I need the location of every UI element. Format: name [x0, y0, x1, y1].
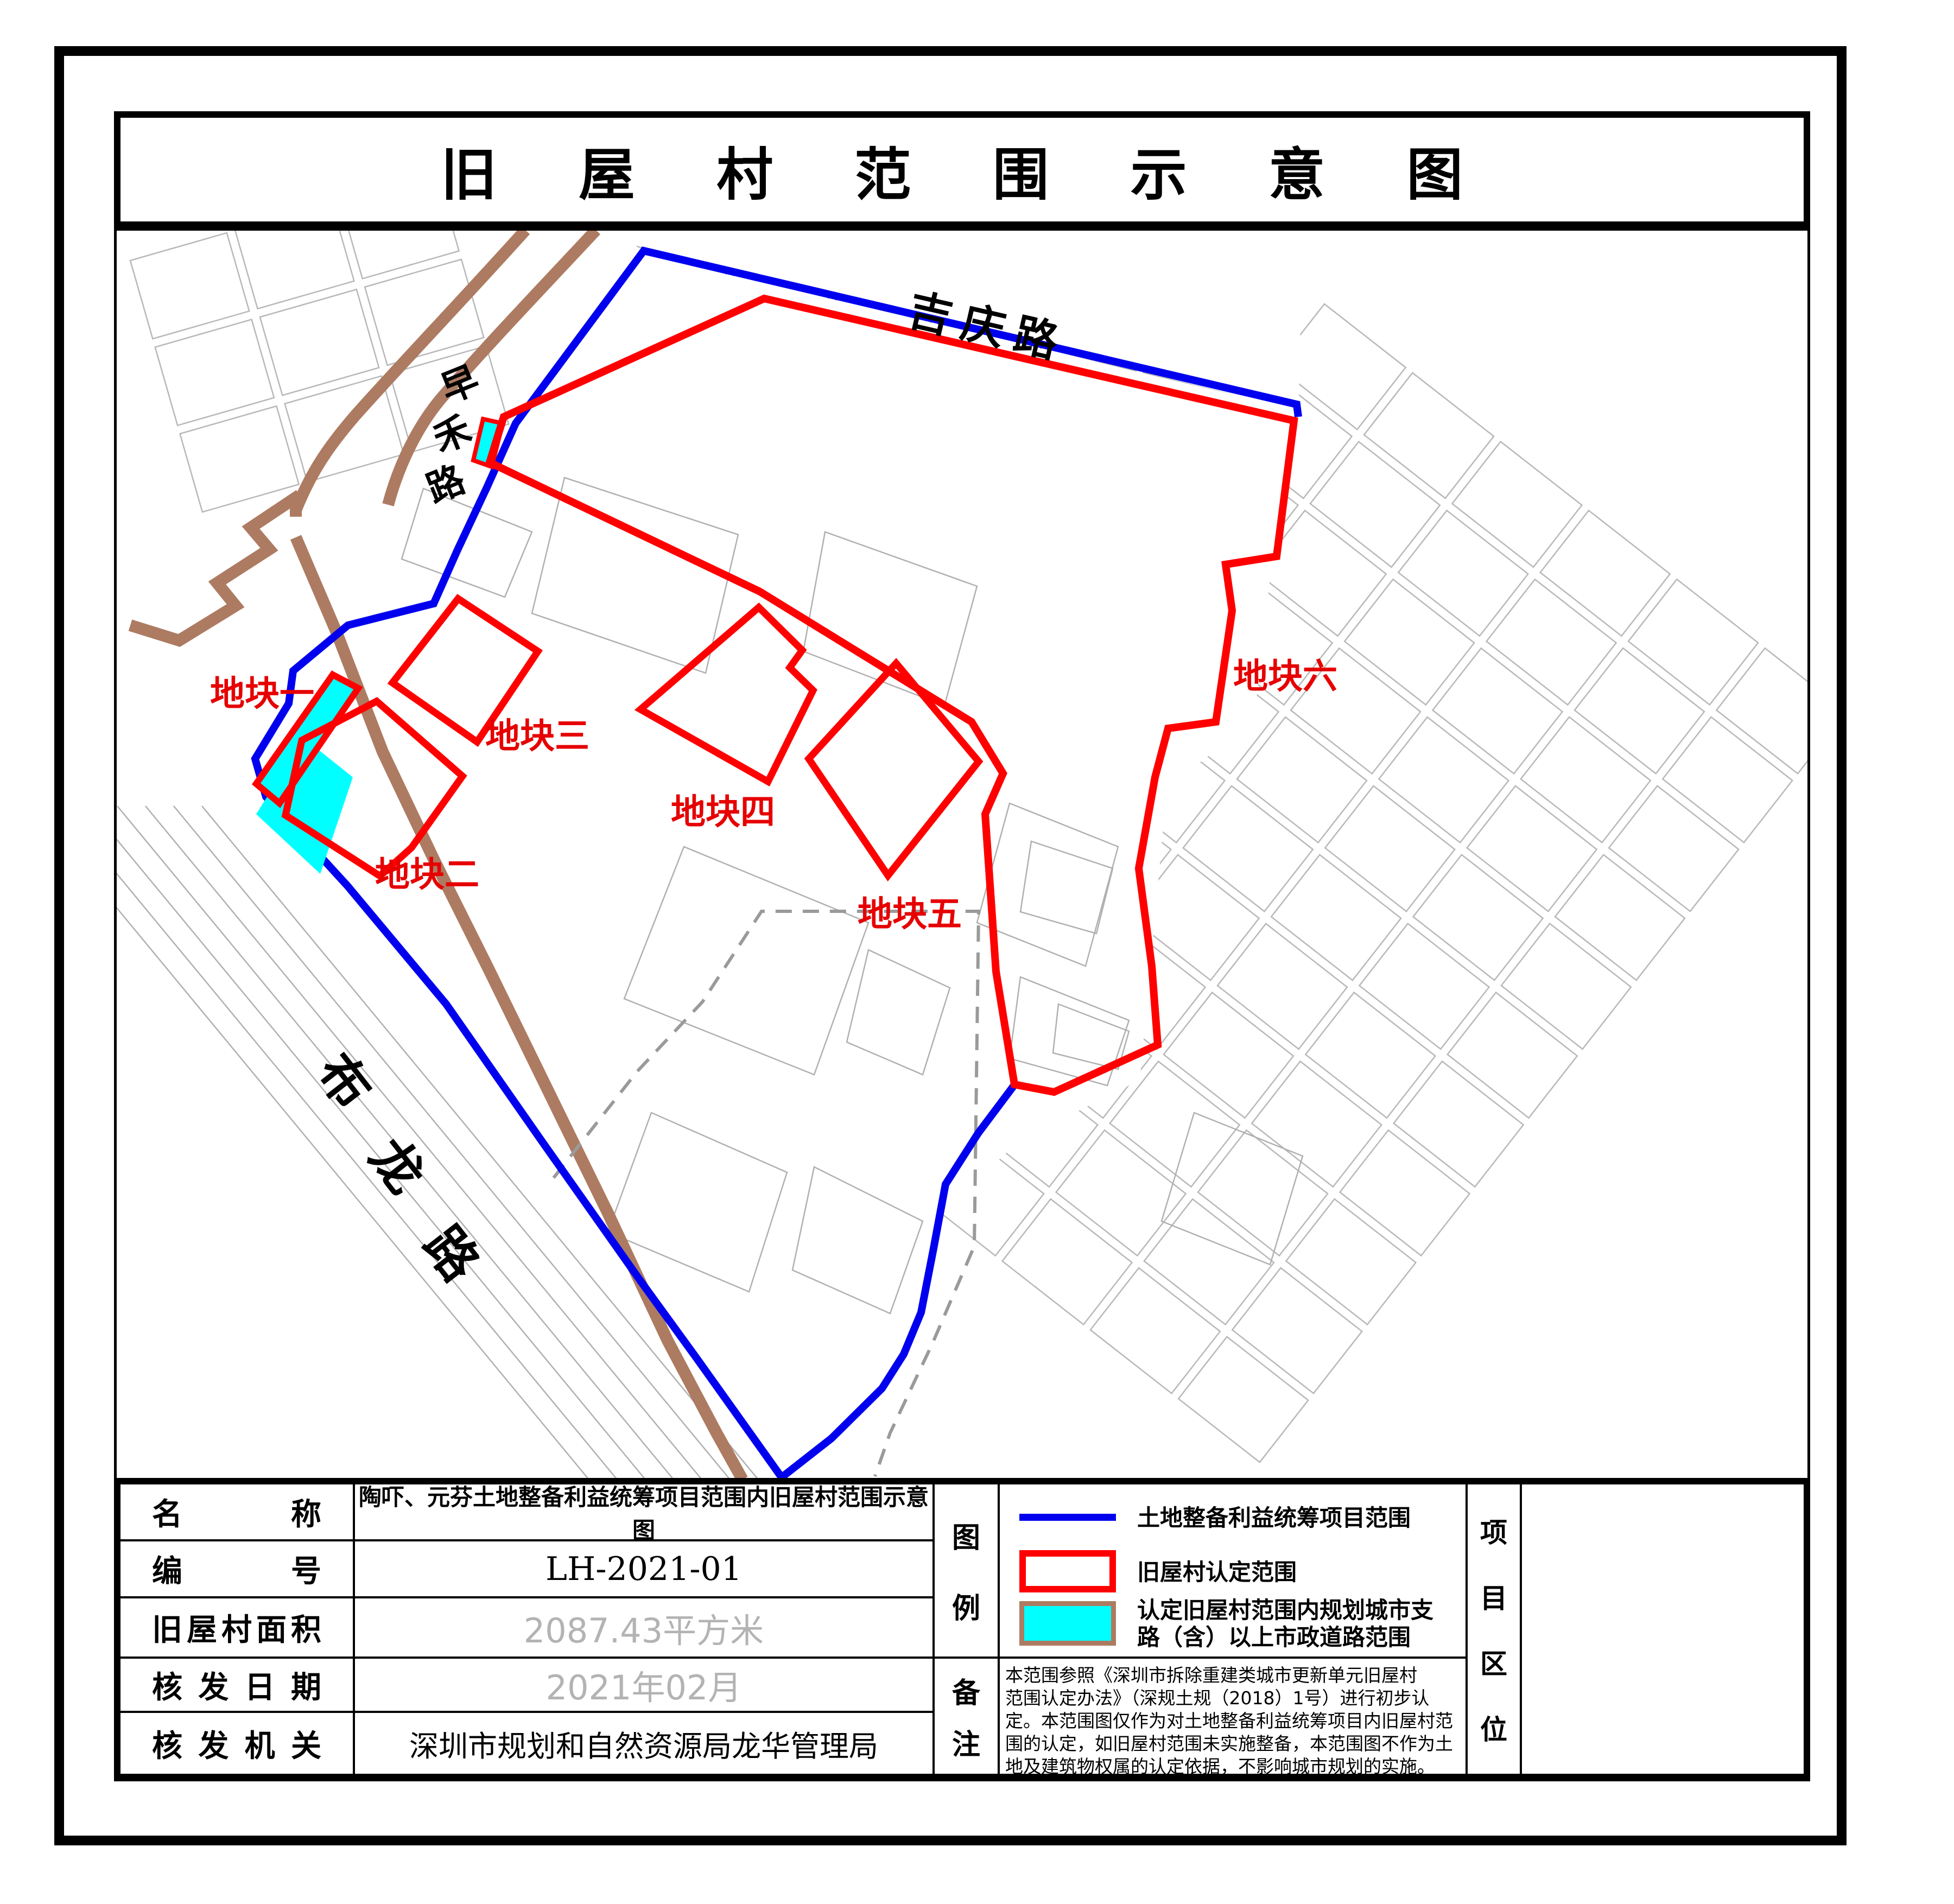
map-label: 龙 [358, 1128, 436, 1204]
map-label: 地块六 [1233, 657, 1337, 697]
parcels-center [624, 847, 868, 1075]
field-value-agency: 深圳市规划和自然资源局龙华管理局 [355, 1713, 932, 1774]
map-label: 布 [304, 1043, 383, 1120]
notes-text: 本范围参照《深圳市拆除重建类城市更新单元旧屋村 范围认定办法》（深规土规（201… [1005, 1664, 1461, 1778]
parcels-center [402, 478, 1303, 1313]
old-village-plots-red [256, 299, 1294, 1092]
field-label-agency: 核发机关 [120, 1713, 353, 1774]
dashed-boundary [554, 911, 979, 1476]
parcels-center [532, 478, 738, 673]
map-label: 地块四 [671, 792, 775, 833]
map-label: 地块二 [375, 855, 479, 895]
parcels-center [977, 803, 1118, 966]
map-label: 路 [421, 458, 472, 511]
legend-item-2: 旧屋村认定范围 [1137, 1559, 1297, 1586]
legend-swatch-red-outline [1019, 1550, 1116, 1592]
legend-swatch-cyan-road [1019, 1601, 1116, 1646]
plot-6 [490, 299, 1294, 1092]
parcels-center [847, 950, 950, 1075]
main-map: 地块一地块二地块三地块四地块五地块六吉庆路早禾路布龙路 [33, 173, 1846, 1480]
field-label-code: 编号 [120, 1541, 353, 1596]
legend-swatch-blue-line [1019, 1514, 1116, 1521]
field-label-area: 旧屋村面积 [120, 1598, 353, 1657]
parcels-center [402, 488, 532, 597]
field-label-name: 名称 [120, 1484, 353, 1539]
field-value-code: LH-2021-01 [355, 1541, 932, 1596]
map-label: 路 [412, 1216, 490, 1293]
field-value-date: 2021年02月 [355, 1659, 932, 1711]
page: { "title": "旧 屋 村 范 围 示 意 图", "colors": … [0, 0, 1954, 1904]
parcels-right [738, 304, 1847, 1462]
field-value-name: 陶吓、元芬土地整备利益统筹项目范围内旧屋村范围示意图 [355, 1484, 932, 1539]
field-value-area: 2087.43平方米 [355, 1598, 932, 1657]
location-header: 项目区位 [1468, 1484, 1520, 1774]
table-divider [1520, 1484, 1522, 1774]
map-label: 地块三 [485, 716, 589, 757]
table-divider [998, 1484, 1000, 1774]
plot-4 [640, 607, 813, 782]
parcels-center [803, 532, 977, 706]
legend-header: 图例 [935, 1484, 998, 1657]
map-label: 吉庆路 [904, 284, 1074, 370]
notes-header: 备注 [935, 1659, 998, 1774]
field-label-date: 核发日期 [120, 1659, 353, 1711]
map-label: 地块五 [858, 894, 962, 935]
plot-5 [809, 663, 979, 875]
legend-item-3: 认定旧屋村范围内规划城市支 路（含）以上市政道路范围 [1137, 1597, 1433, 1651]
map-label: 地块一 [210, 674, 314, 714]
legend-item-1: 土地整备利益统筹项目范围 [1137, 1505, 1411, 1532]
plot-labels: 地块一地块二地块三地块四地块五地块六 [210, 657, 1337, 935]
parcels-center [792, 1167, 923, 1313]
